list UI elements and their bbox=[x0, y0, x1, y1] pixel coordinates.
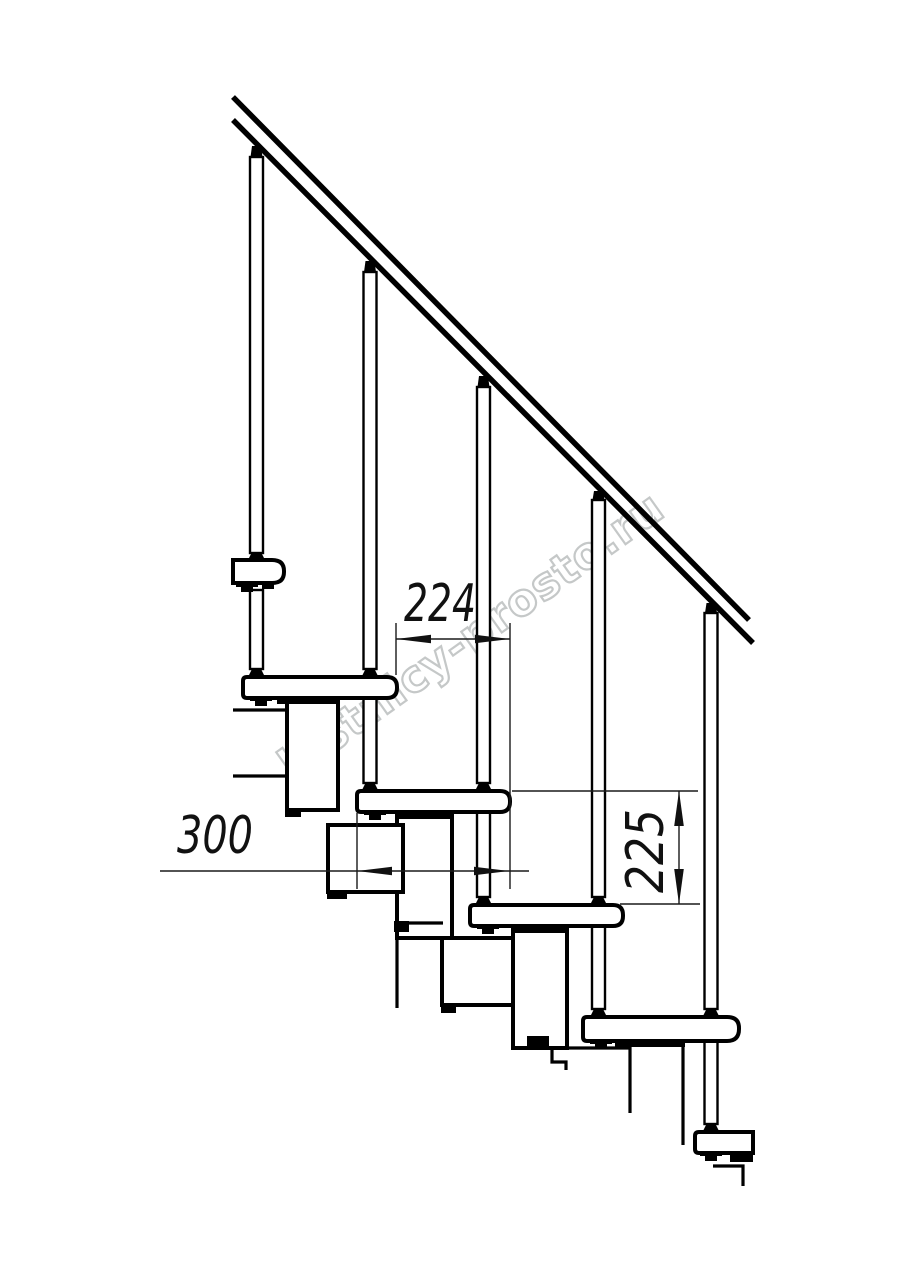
baluster-4 bbox=[592, 500, 605, 1009]
rail-connector-5 bbox=[705, 603, 717, 613]
baluster-4-lower bbox=[592, 926, 605, 1009]
module-3-column bbox=[513, 927, 567, 1048]
arrowhead-right bbox=[474, 867, 509, 875]
module-4-column bbox=[630, 1042, 683, 1145]
tread-2-bar bbox=[397, 811, 450, 819]
arrowhead-left bbox=[396, 635, 431, 643]
flange bbox=[475, 898, 493, 906]
floor-mount-foot bbox=[700, 1152, 722, 1161]
module-2-column bbox=[397, 813, 452, 938]
handrail bbox=[233, 97, 753, 643]
module-3-tab bbox=[441, 1003, 456, 1013]
module-2 bbox=[328, 825, 403, 892]
dimension-label-224: 224 bbox=[404, 574, 476, 634]
tread-1-foot bbox=[250, 697, 272, 706]
tread-2 bbox=[357, 791, 510, 812]
flange bbox=[361, 784, 379, 792]
module-1-tab bbox=[285, 808, 301, 817]
tread-1 bbox=[243, 677, 397, 698]
handrail-lower-band bbox=[233, 120, 753, 643]
module-3-column-tab bbox=[527, 1036, 549, 1048]
tread-4-bar bbox=[615, 1040, 685, 1047]
flange bbox=[475, 784, 493, 792]
baluster-5-lower bbox=[705, 1041, 718, 1124]
baluster-3-lower bbox=[477, 812, 490, 897]
baluster-2-lower bbox=[364, 698, 377, 783]
tread-3 bbox=[470, 905, 623, 926]
dimension-label-225: 225 bbox=[616, 809, 676, 893]
module-2-tab bbox=[327, 890, 347, 899]
rail-connector-1 bbox=[251, 146, 263, 157]
flange bbox=[702, 1010, 720, 1018]
tread-2-foot bbox=[364, 811, 386, 820]
tread-3-foot bbox=[477, 925, 499, 934]
staircase-technical-drawing: lestnicy-prosto.ru bbox=[0, 0, 914, 1280]
baluster-3-upper bbox=[477, 387, 490, 783]
flange bbox=[590, 1010, 608, 1018]
floor-mount-plate bbox=[695, 1132, 753, 1153]
tread-0-fragment bbox=[233, 560, 284, 583]
floor-mount-step-line bbox=[713, 1166, 743, 1186]
tread-1-bar bbox=[277, 696, 340, 704]
module-4-partial bbox=[552, 1048, 630, 1070]
rail-connector-3 bbox=[478, 376, 490, 387]
module-3 bbox=[442, 938, 518, 1005]
flange bbox=[361, 670, 379, 678]
module-2-column-tab bbox=[394, 921, 409, 932]
staircase-drawing-page: lestnicy-prosto.ru bbox=[0, 0, 914, 1280]
baluster-5-upper bbox=[705, 613, 718, 1009]
flange bbox=[248, 670, 266, 678]
tread-3-bar bbox=[513, 925, 567, 933]
dimension-label-300: 300 bbox=[177, 806, 253, 866]
tread-4 bbox=[583, 1017, 739, 1041]
baluster-1 bbox=[250, 157, 263, 669]
rail-connector-4 bbox=[593, 491, 605, 500]
baluster-1-lower bbox=[250, 590, 263, 669]
tread-0-bar bbox=[262, 583, 274, 589]
baluster-5 bbox=[705, 613, 718, 1124]
floor-mount-bar bbox=[730, 1152, 753, 1162]
module-1 bbox=[287, 700, 338, 810]
rail-connector-2 bbox=[364, 261, 376, 272]
baluster-1-upper bbox=[250, 157, 263, 553]
baluster-4-upper bbox=[592, 500, 605, 897]
baluster-2-upper bbox=[364, 272, 377, 669]
flange bbox=[248, 553, 266, 561]
flange bbox=[590, 898, 608, 906]
baluster-2 bbox=[364, 272, 377, 783]
flange bbox=[702, 1125, 720, 1133]
